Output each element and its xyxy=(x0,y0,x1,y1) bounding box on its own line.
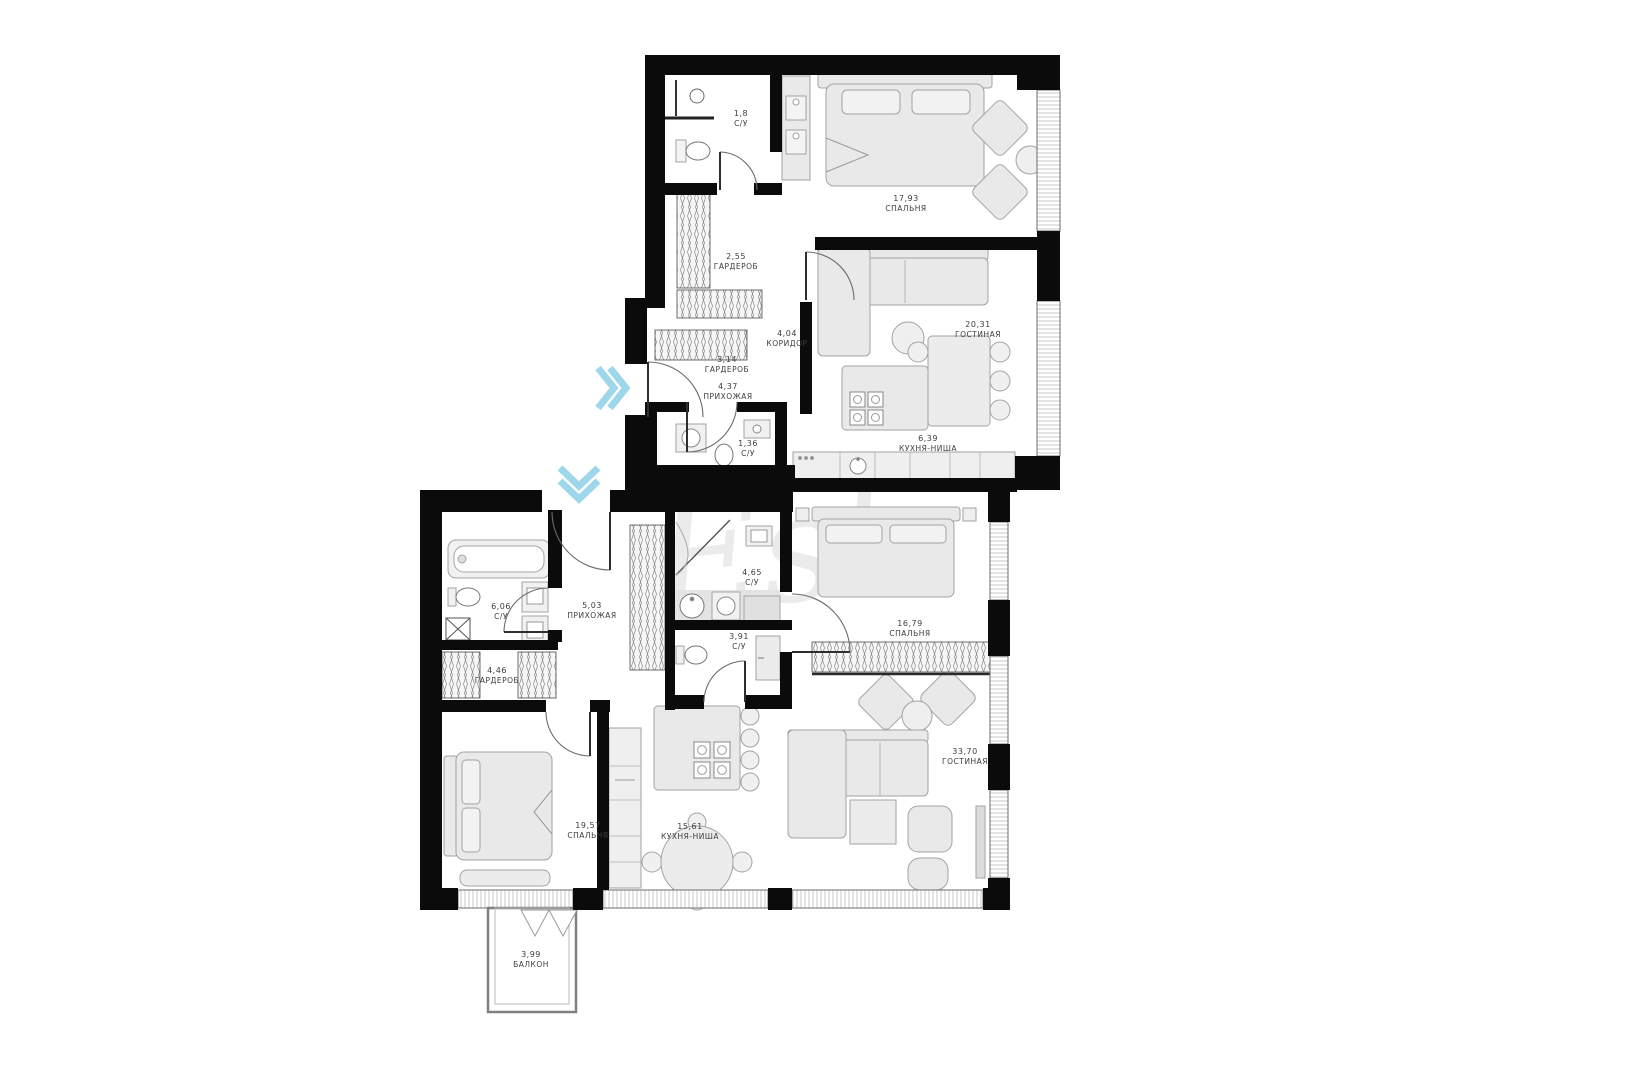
su606-fixtures xyxy=(446,540,550,646)
bathroom-top-fixtures xyxy=(663,76,810,180)
entrance-arrows xyxy=(560,368,626,499)
bed-top-unit xyxy=(818,66,992,186)
door-su391 xyxy=(704,661,745,702)
entrance-arrow-right-icon xyxy=(598,368,626,408)
living-bottom-furniture xyxy=(788,668,985,890)
bed-mid-unit xyxy=(796,507,976,597)
kitchen-counter-top xyxy=(793,452,1015,480)
door-wardrobe-bedroom xyxy=(546,712,590,756)
kitchen-bottom-furniture xyxy=(609,706,759,910)
bed-bottom-unit xyxy=(444,752,552,886)
door-bathroom-top xyxy=(720,152,757,190)
floor-plan-drawing: Est. xyxy=(0,0,1625,1080)
entrance-arrow-down-icon xyxy=(560,468,598,499)
floor-plan-canvas: Est. xyxy=(0,0,1625,1080)
kitchen-island-top xyxy=(842,366,928,430)
balcony-outline xyxy=(488,908,577,1012)
